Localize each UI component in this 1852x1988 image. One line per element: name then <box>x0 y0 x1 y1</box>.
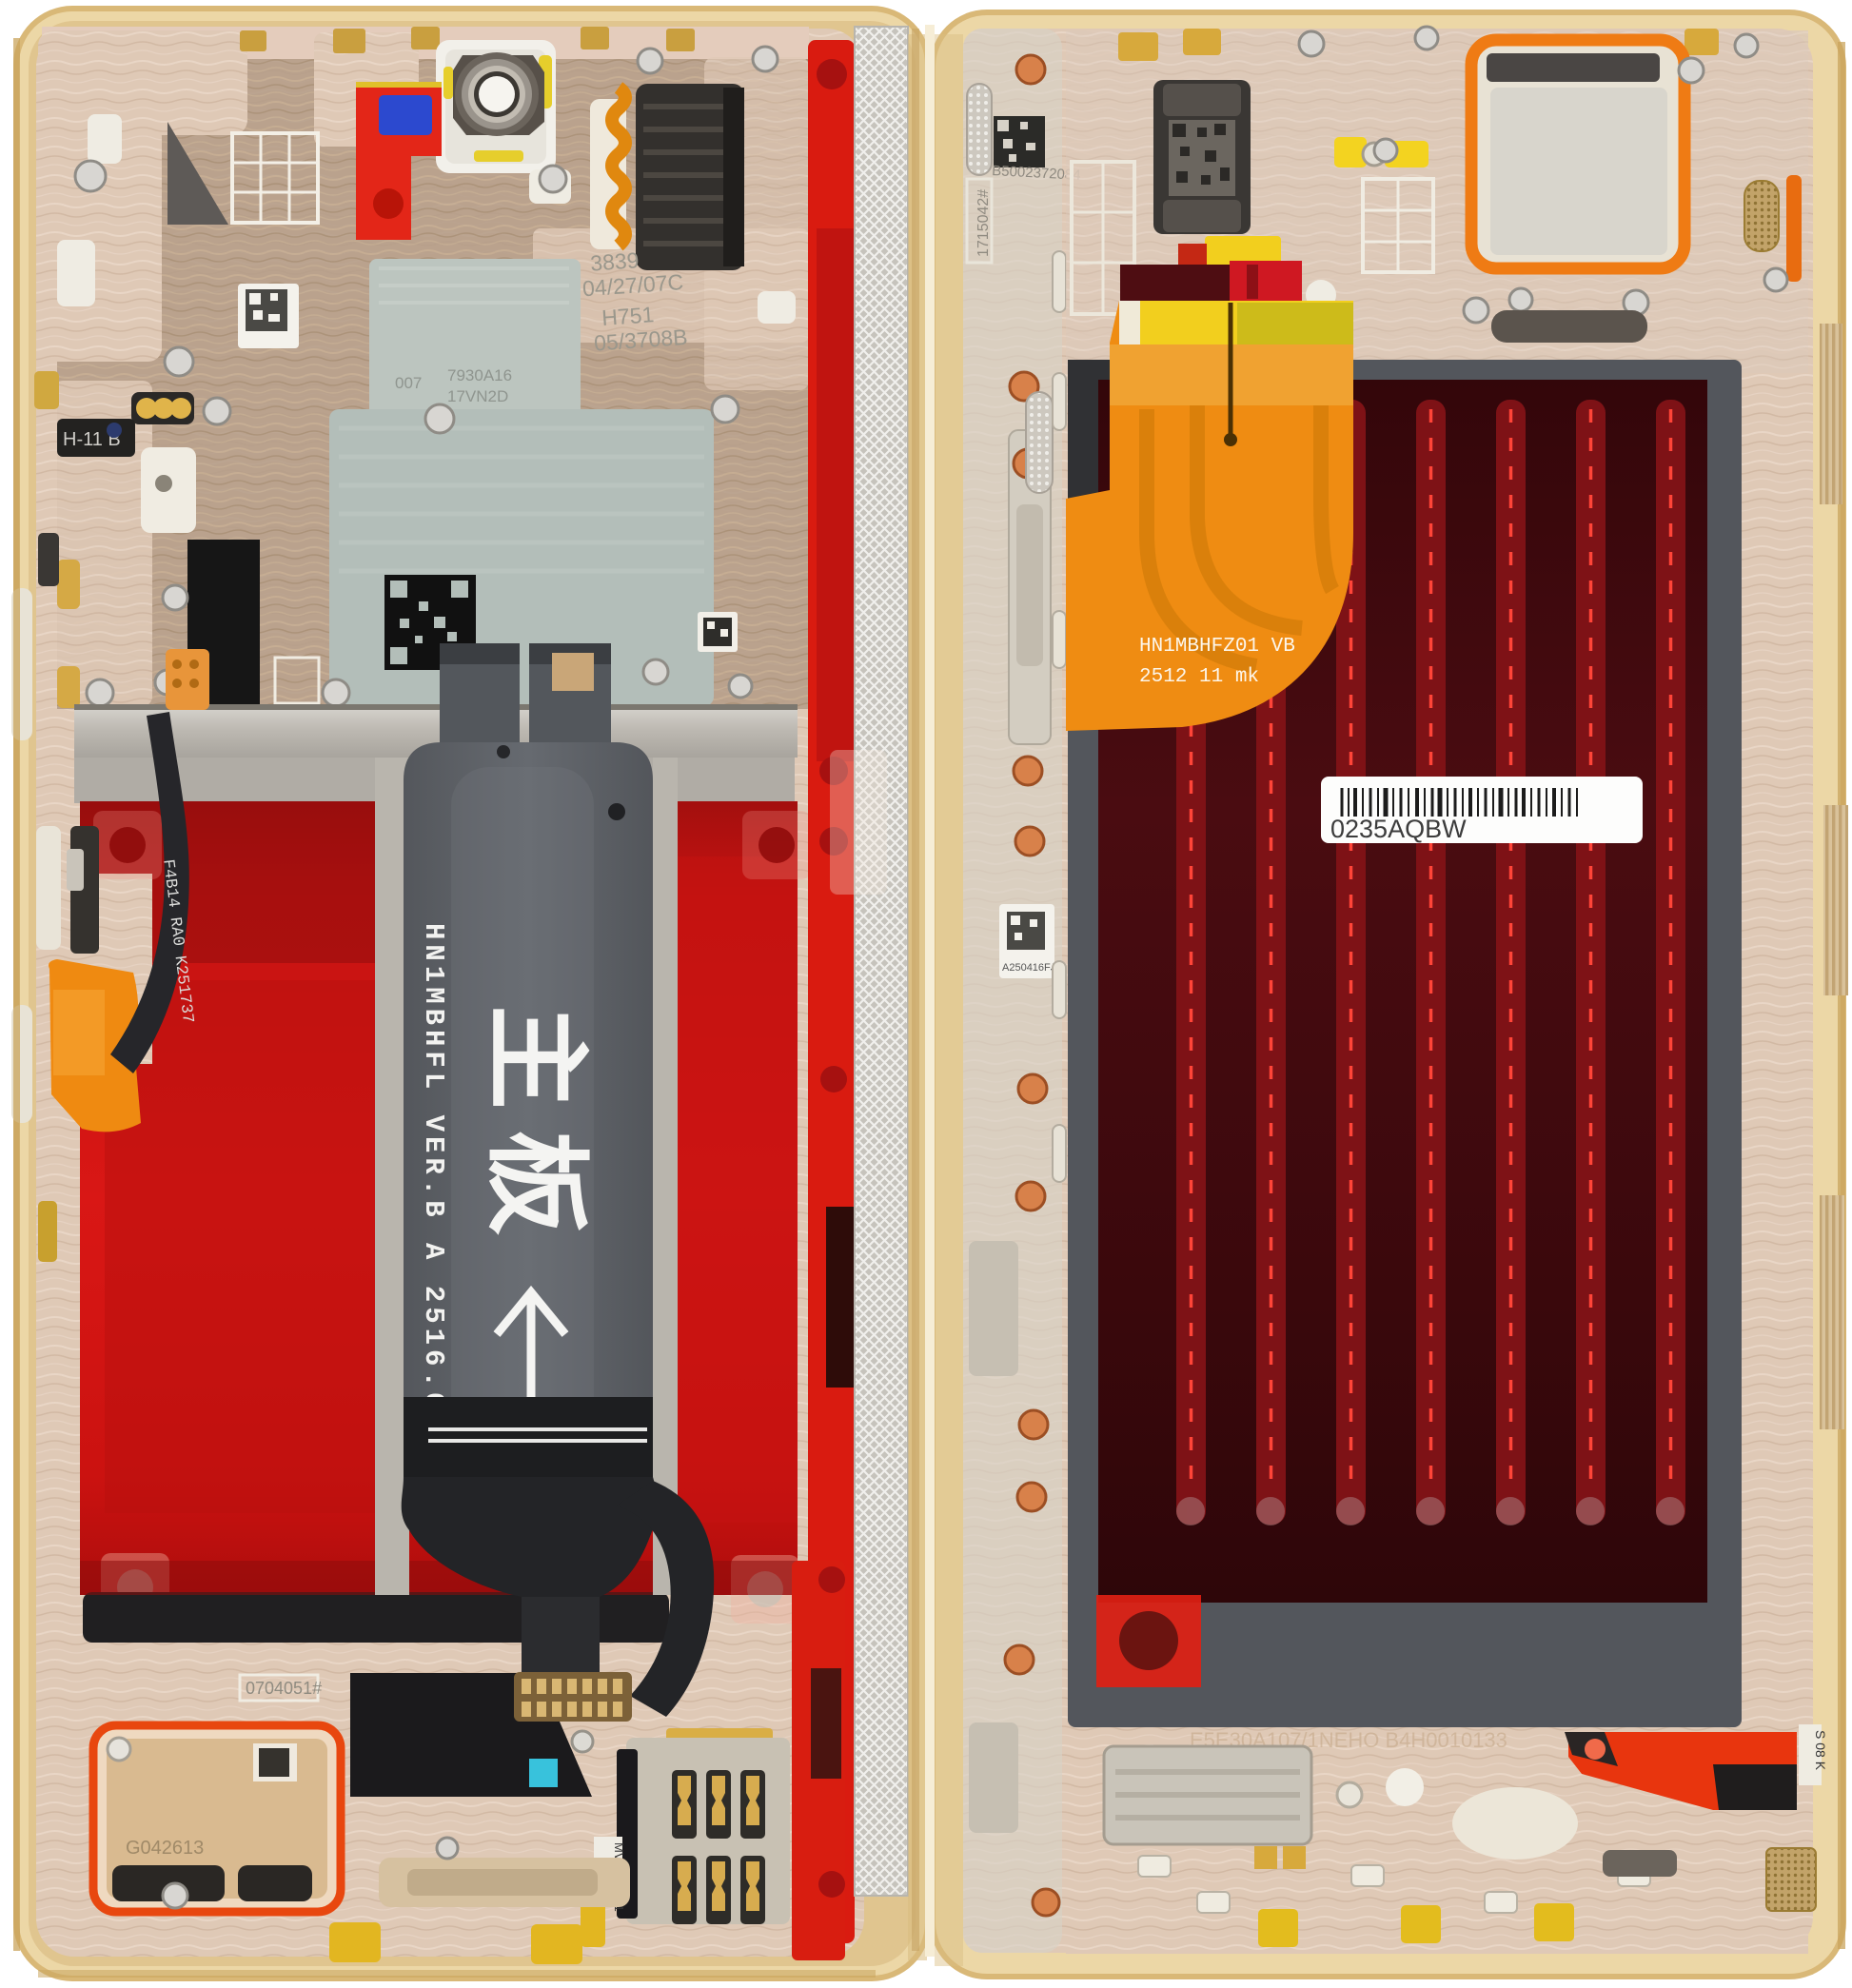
svg-text:主板: 主板 <box>477 1005 594 1256</box>
svg-text:0235AQBW: 0235AQBW <box>1330 815 1467 843</box>
svg-text:3839: 3839 <box>589 247 640 276</box>
svg-text:HN1MBHFZ01 VB: HN1MBHFZ01 VB <box>1139 636 1295 658</box>
svg-text:17VN2D: 17VN2D <box>447 387 508 405</box>
svg-text:S 08 K: S 08 K <box>1813 1730 1828 1771</box>
svg-text:G042613: G042613 <box>126 1838 204 1859</box>
svg-text:H751: H751 <box>601 302 655 330</box>
svg-text:0704051#: 0704051# <box>246 1679 322 1698</box>
svg-text:1715042#: 1715042# <box>975 189 992 257</box>
svg-text:007: 007 <box>395 374 422 392</box>
svg-text:7930A16: 7930A16 <box>447 366 512 384</box>
svg-text:2512 11 mk: 2512 11 mk <box>1139 666 1259 688</box>
svg-text:HN1MBHFL VER.B A 2516.02: HN1MBHFL VER.B A 2516.02 <box>418 923 449 1435</box>
